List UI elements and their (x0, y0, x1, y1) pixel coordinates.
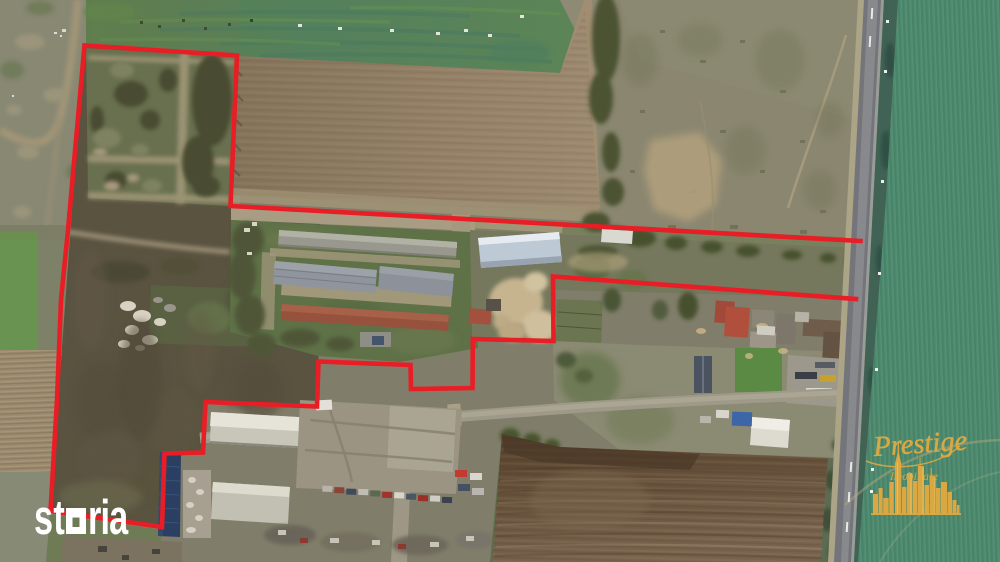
svg-text:st: st (34, 490, 65, 544)
svg-text:ria: ria (88, 490, 129, 544)
svg-text:Prestige: Prestige (871, 425, 968, 463)
